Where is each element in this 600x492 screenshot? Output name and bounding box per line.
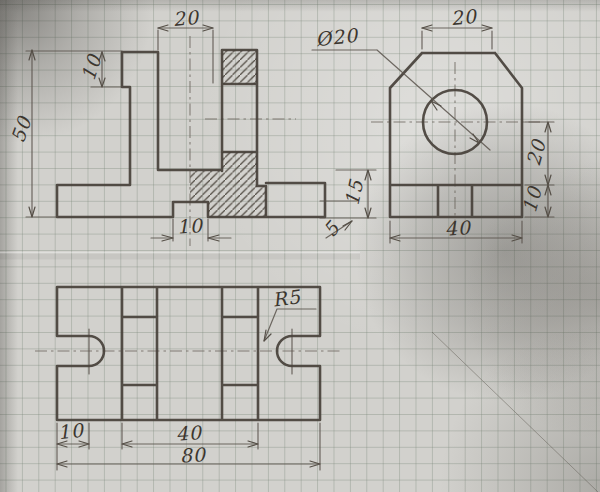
- dim-top-slot-offset: 10: [57, 419, 86, 444]
- section-hatch-upper: [222, 50, 257, 84]
- dim-top-notch-radius: R5: [271, 285, 303, 311]
- dim-hole-diameter: Ø20: [314, 24, 360, 50]
- dim-side-width: 40: [444, 216, 473, 240]
- dim-side-top-width: 20: [450, 5, 479, 30]
- dim-top-length: 80: [179, 443, 208, 467]
- drawing-canvas: 20 10 50 10 15 5 20 Ø20 20 10 40 10 40 8…: [0, 0, 600, 492]
- dim-top-span: 40: [175, 421, 204, 445]
- dim-front-slot-width: 20: [172, 6, 201, 30]
- dim-front-notch-width: 10: [176, 214, 205, 238]
- scanned-drawing-page: 20 10 50 10 15 5 20 Ø20 20 10 40 10 40 8…: [0, 0, 600, 492]
